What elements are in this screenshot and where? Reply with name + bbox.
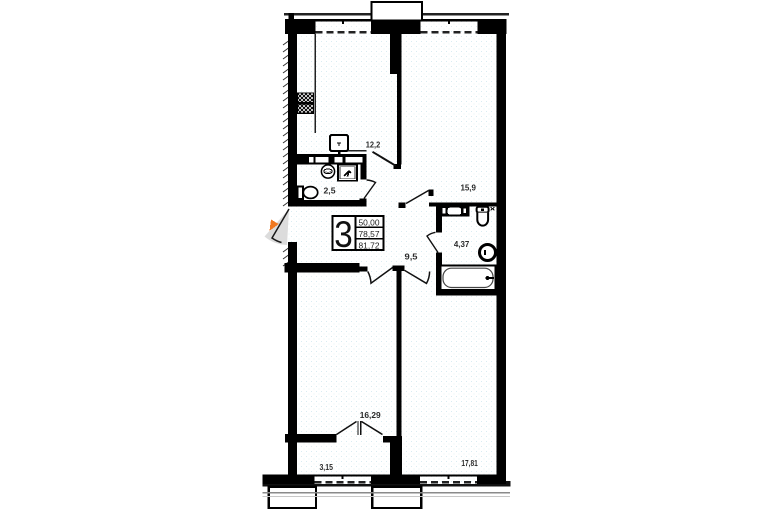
- svg-text:12,2: 12,2: [366, 139, 381, 149]
- svg-text:9,5: 9,5: [405, 252, 418, 262]
- svg-text:16,29: 16,29: [360, 410, 381, 420]
- svg-text:3: 3: [334, 214, 353, 255]
- svg-text:2,5: 2,5: [324, 186, 336, 196]
- svg-text:78,57: 78,57: [359, 229, 380, 239]
- svg-text:17,81: 17,81: [461, 458, 478, 468]
- svg-text:50,00: 50,00: [359, 218, 380, 228]
- svg-text:15,9: 15,9: [460, 183, 476, 193]
- svg-text:3,15: 3,15: [319, 462, 333, 472]
- svg-text:81,72: 81,72: [359, 240, 380, 250]
- svg-text:4,37: 4,37: [454, 239, 470, 249]
